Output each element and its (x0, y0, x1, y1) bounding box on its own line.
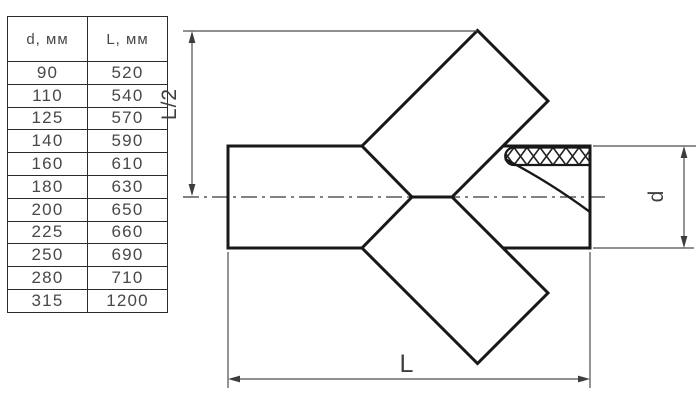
canvas: d, мм L, мм 90 520 110 540 125 570 140 5… (0, 0, 700, 420)
dimension-length: L (228, 252, 590, 388)
label-half-length: L/2 (158, 88, 181, 120)
arrowhead-left-icon (228, 376, 240, 383)
arrowhead-down-icon (681, 236, 688, 248)
upper-branch-outline (362, 31, 548, 198)
dimension-diameter: d (593, 146, 696, 248)
label-diameter: d (645, 190, 668, 203)
lower-branch-outline (362, 197, 548, 364)
dimension-half-length: L/2 (158, 31, 477, 196)
arrowhead-up-icon (189, 31, 196, 43)
label-length: L (400, 350, 415, 378)
arrowhead-up-icon (681, 146, 688, 158)
fitting-drawing: L/2 L d (0, 0, 700, 420)
socket-bell-curve (505, 159, 590, 212)
arrowhead-down-icon (189, 184, 196, 196)
arrowhead-right-icon (578, 376, 590, 383)
gasket-hatch-band (505, 148, 590, 166)
